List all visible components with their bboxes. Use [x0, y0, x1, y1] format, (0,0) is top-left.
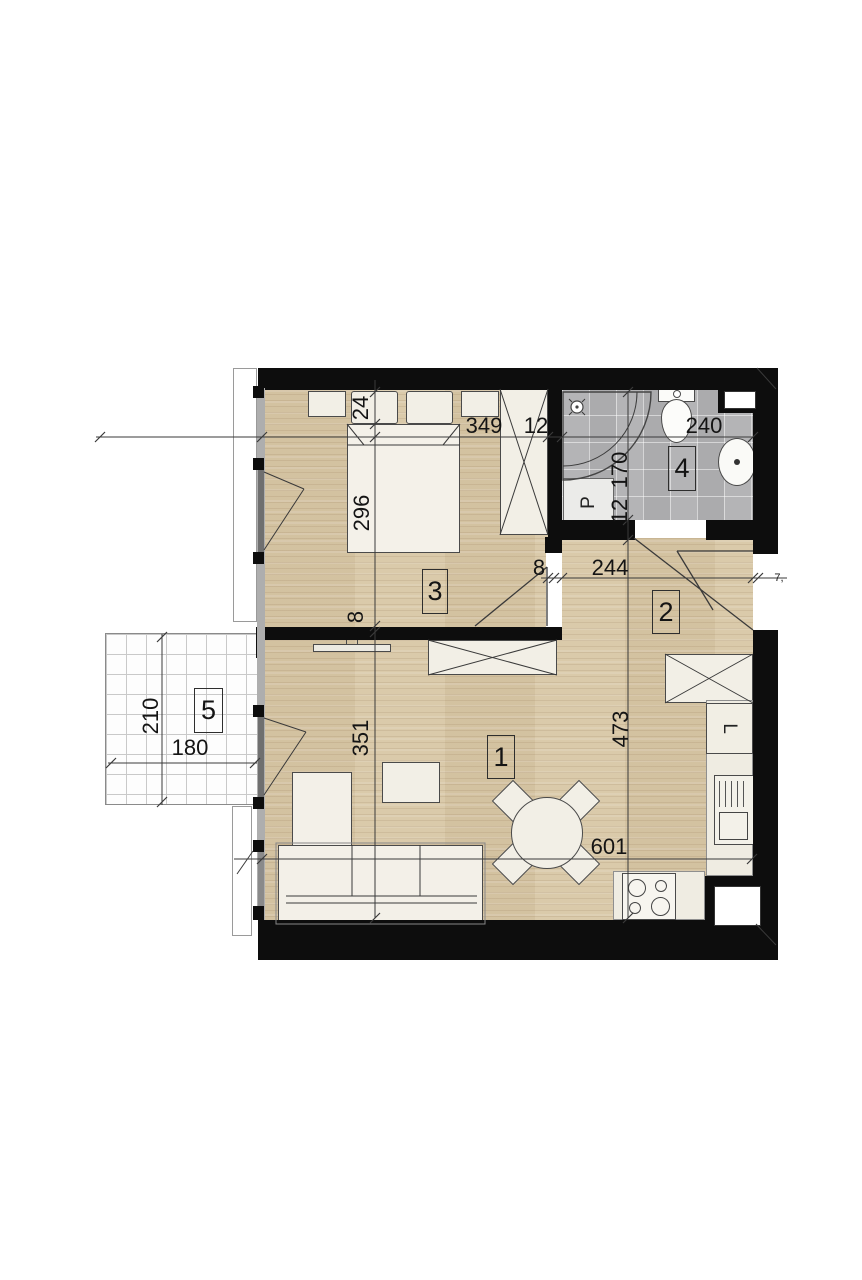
bedroom-number: 3 [427, 576, 442, 607]
dimension-473: 473 [610, 699, 632, 759]
washbasin-drain [734, 459, 740, 465]
window-stop-5 [253, 797, 264, 809]
dimension-210: 210 [140, 686, 162, 746]
dimension-8-bedroom: 8 [345, 587, 367, 647]
window-stop-1 [253, 386, 264, 398]
room-label-balcony: 5 [194, 688, 223, 733]
stove [622, 873, 676, 920]
balcony-door-glazing [258, 717, 264, 797]
window-stop-4 [253, 705, 264, 717]
dimension-244: 244 [580, 557, 640, 579]
bed-pillow-right [406, 391, 453, 424]
exterior-ledge-top [233, 368, 257, 622]
dimension-351: 351 [350, 708, 372, 768]
window-stop-2 [253, 458, 264, 470]
room-label-bathroom: 4 [668, 446, 696, 491]
tv-sideboard [428, 640, 557, 675]
exterior-ledge-bottom [232, 806, 252, 936]
living-window-glazing [258, 852, 264, 908]
balcony-number: 5 [201, 695, 216, 726]
bedroom-window-glazing [258, 470, 264, 552]
washer-letter: P [578, 496, 600, 509]
room-label-hall: 2 [652, 590, 680, 634]
coffee-table [382, 762, 440, 803]
balcony-deck [105, 633, 265, 805]
fridge-label: L [704, 705, 755, 752]
dimension-296: 296 [351, 483, 373, 543]
window-stop-3 [253, 552, 264, 564]
burner-large-1 [628, 879, 646, 897]
dimension-601: 601 [579, 836, 639, 858]
dimension-7-entry: 7, [766, 571, 792, 585]
window-stop-6 [253, 840, 264, 852]
sofa-main [278, 845, 483, 922]
bathroom-number: 4 [674, 453, 689, 484]
room-label-living: 1 [487, 735, 515, 779]
dimension-349: 349 [454, 415, 514, 437]
wall-top [258, 368, 778, 390]
sofa-chaise [292, 772, 352, 847]
sink-basin [719, 812, 748, 840]
window-stop-7 [253, 906, 264, 920]
dimension-12-top: 12 [521, 415, 551, 437]
nightstand-left [308, 391, 346, 417]
hall-wardrobe [665, 654, 753, 703]
dimension-240: 240 [674, 415, 734, 437]
dining-table [511, 797, 583, 869]
floor-plan: L P [0, 0, 862, 1280]
burner-large-2 [651, 897, 670, 916]
dish-drainer [719, 781, 748, 807]
living-number: 1 [493, 742, 508, 773]
room-label-bedroom: 3 [422, 569, 448, 614]
wall-bottom [258, 920, 778, 960]
wall-bedroom-bathroom [548, 368, 562, 540]
dimension-180: 180 [160, 737, 220, 759]
dimension-12-bath: 12 [609, 481, 631, 541]
bedroom-wardrobe [500, 389, 548, 535]
fridge-letter: L [719, 723, 741, 734]
burner-small-2 [629, 902, 641, 914]
toilet-button [673, 390, 681, 398]
wall-stub-hall [545, 537, 562, 553]
kitchen-sink-unit [714, 775, 754, 845]
vent-niche-bottom [714, 886, 761, 926]
vent-niche-top [724, 391, 756, 409]
wall-bathroom-bottom-right [706, 520, 778, 540]
wall-bedroom-living [258, 627, 562, 640]
hall-number: 2 [658, 597, 673, 628]
burner-small-1 [655, 880, 667, 892]
dimension-24: 24 [350, 378, 372, 438]
dimension-8-hall: 8 [527, 557, 551, 579]
